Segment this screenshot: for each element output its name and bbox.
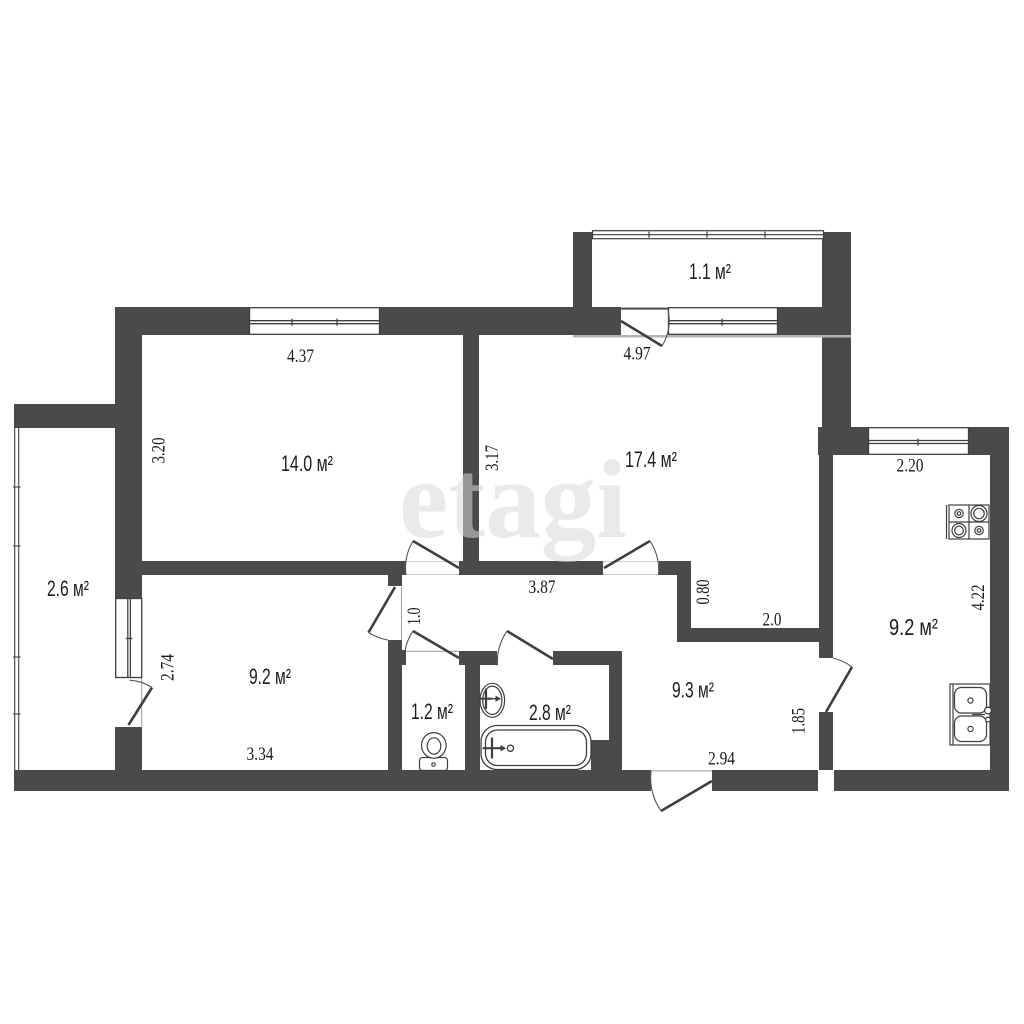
svg-text:0.80: 0.80 (693, 580, 714, 605)
svg-text:2.6 м²: 2.6 м² (47, 576, 89, 601)
svg-text:2.94: 2.94 (708, 749, 735, 770)
svg-text:3.87: 3.87 (529, 577, 556, 598)
svg-text:4.37: 4.37 (287, 346, 314, 367)
svg-text:1.85: 1.85 (789, 708, 810, 734)
svg-text:3.17: 3.17 (482, 445, 503, 471)
svg-text:9.2 м²: 9.2 м² (889, 614, 938, 640)
svg-text:9.2 м²: 9.2 м² (249, 664, 291, 689)
svg-text:9.3 м²: 9.3 м² (672, 678, 714, 703)
svg-text:2.20: 2.20 (897, 456, 924, 477)
svg-text:17.4 м²: 17.4 м² (625, 447, 677, 472)
svg-text:2.8 м²: 2.8 м² (529, 700, 571, 725)
svg-text:2.74: 2.74 (158, 654, 179, 681)
svg-text:2.0: 2.0 (763, 610, 782, 631)
svg-text:14.0 м²: 14.0 м² (281, 451, 333, 476)
svg-text:1.1 м²: 1.1 м² (689, 259, 731, 284)
svg-text:4.22: 4.22 (968, 585, 989, 611)
svg-text:4.97: 4.97 (624, 344, 651, 365)
svg-text:etagi: etagi (399, 438, 627, 562)
svg-text:3.34: 3.34 (247, 744, 274, 765)
svg-text:1.0: 1.0 (404, 608, 425, 626)
svg-text:1.2 м²: 1.2 м² (411, 699, 453, 724)
svg-text:3.20: 3.20 (149, 438, 170, 464)
